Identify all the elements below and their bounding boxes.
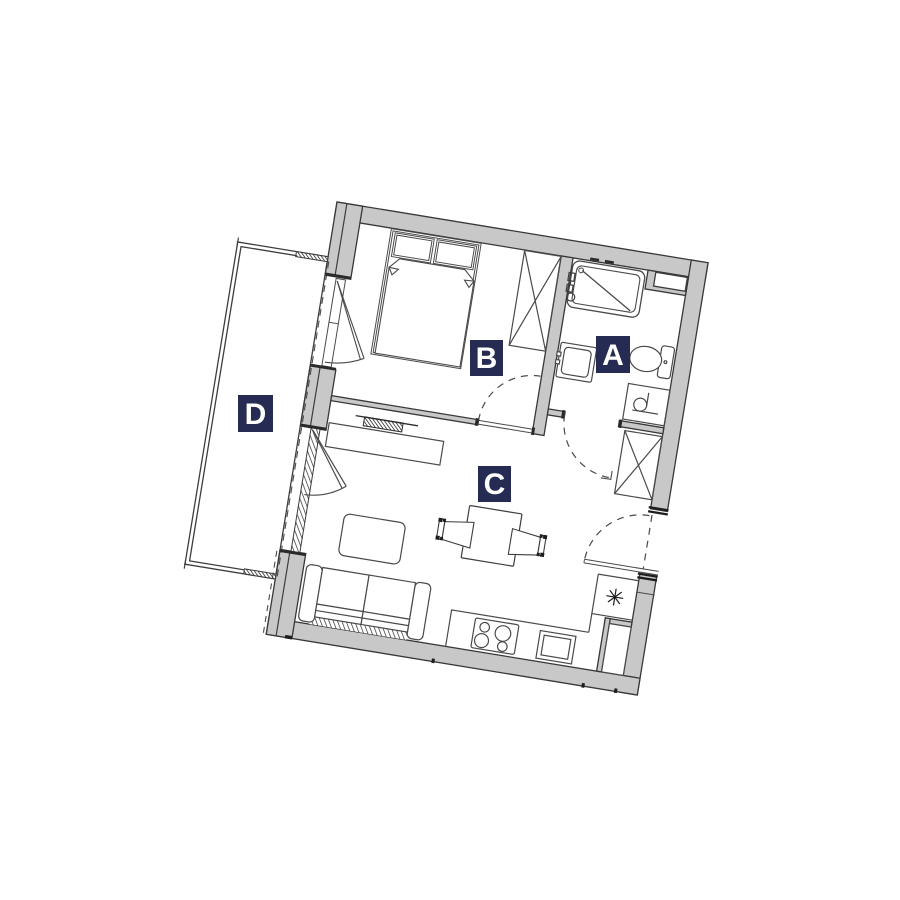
svg-text:D: D: [245, 398, 267, 431]
svg-text:B: B: [476, 342, 498, 375]
svg-text:A: A: [602, 339, 624, 372]
svg-text:C: C: [484, 468, 506, 501]
